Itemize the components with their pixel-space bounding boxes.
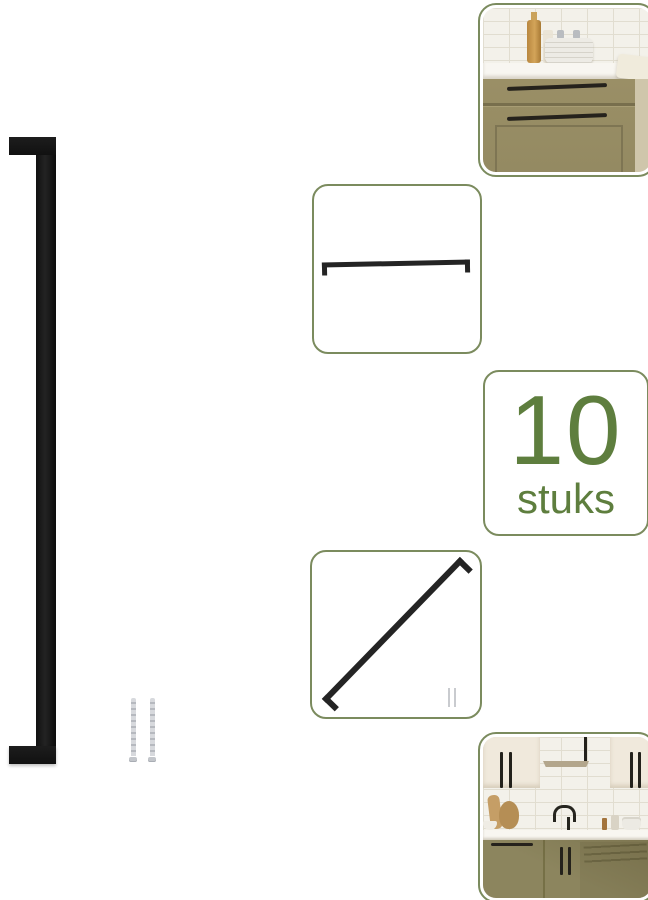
- handle-bar: [322, 557, 464, 703]
- quantity-number: 10: [509, 385, 622, 475]
- drawer-panel: [495, 125, 623, 172]
- handle-foot-left: [322, 262, 327, 275]
- product-handle-photo: [9, 137, 56, 764]
- jar: [611, 815, 619, 830]
- drawer-handle: [507, 113, 607, 121]
- cabinet-handle: [500, 752, 503, 788]
- cutting-board-round: [499, 801, 519, 829]
- screw-shaft: [131, 698, 136, 756]
- base-cabinets: [483, 840, 648, 898]
- drawer-divider: [483, 103, 635, 106]
- faucet: [553, 805, 576, 822]
- cabinet-handle: [630, 752, 633, 788]
- mounting-screw: [129, 698, 137, 762]
- handle-angled-view-icon: [322, 557, 473, 711]
- handle-front-view-box: [312, 184, 482, 354]
- handle-top-foot: [9, 137, 56, 155]
- screw-icon: [454, 688, 456, 707]
- faucet-stem: [567, 817, 570, 830]
- screw-head: [148, 757, 156, 762]
- handle-front-view-icon: [322, 259, 470, 275]
- product-image-canvas: 10 stuks: [0, 0, 648, 900]
- mounting-screw: [148, 698, 156, 762]
- kitchen-photo-top: [478, 3, 648, 177]
- countertop: [483, 830, 648, 840]
- small-bottle: [602, 818, 607, 830]
- screw-shaft: [150, 698, 155, 756]
- screw-icon: [448, 688, 450, 707]
- range-hood: [543, 761, 589, 767]
- handle-bar: [36, 137, 56, 764]
- kitchen-photo-top-image: [483, 8, 648, 172]
- kitchen-photo-bottom: [478, 732, 648, 900]
- handle-bottom-foot: [9, 746, 56, 764]
- upper-cabinet-right: [610, 737, 648, 788]
- cabinet-handle: [638, 752, 641, 788]
- side-wall: [635, 79, 648, 172]
- oil-bottle: [527, 20, 541, 63]
- screw-head: [129, 757, 137, 762]
- handle-bar: [322, 259, 470, 267]
- kitchen-photo-bottom-image: [483, 737, 648, 898]
- cabinet-handle: [509, 752, 512, 788]
- handle-foot-right: [465, 259, 470, 272]
- quantity-unit: stuks: [517, 477, 615, 521]
- upper-cabinet-left: [483, 737, 540, 788]
- quantity-badge: 10 stuks: [483, 370, 648, 536]
- pot: [622, 817, 641, 830]
- hood-duct: [584, 737, 587, 762]
- drawer-fronts: [483, 79, 635, 172]
- handle-angled-view-box: [310, 550, 482, 719]
- drawer-handle: [507, 83, 607, 91]
- shadow-overlay: [483, 840, 648, 898]
- plate-stack: [545, 38, 593, 64]
